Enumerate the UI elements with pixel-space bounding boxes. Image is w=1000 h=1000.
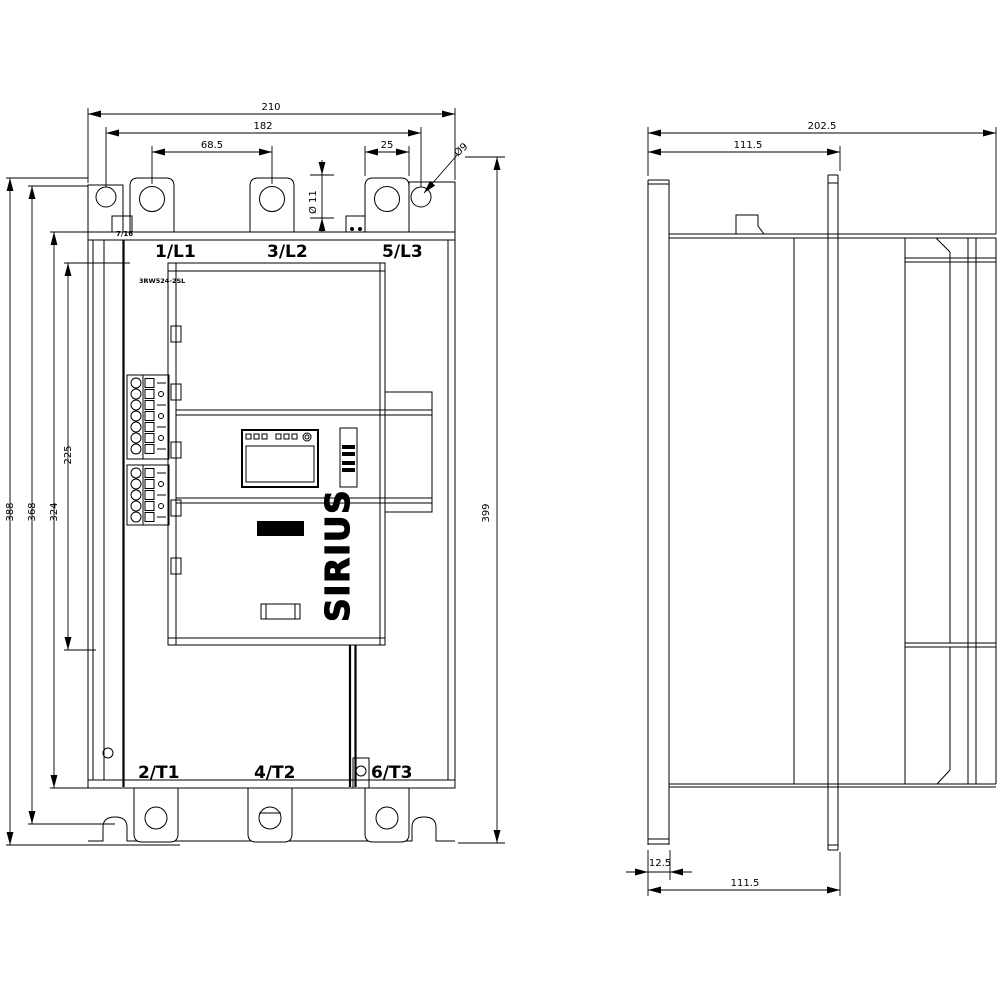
dim-slot-dia: Ø 11: [307, 190, 319, 214]
keyhole-slot-left: [103, 817, 127, 842]
side-tab-middle: [828, 175, 838, 850]
side-rail-left: [648, 180, 669, 845]
mounting-hole-top-left: [96, 187, 116, 207]
terminal-hole-L1: [140, 187, 165, 212]
terminal-label-2T1: 2/T1: [138, 763, 179, 783]
dim-lower-depth: 111.5: [731, 878, 760, 889]
side-view: 202.5 111.5 12.5 111.5: [626, 121, 996, 896]
siemens-logo: SIEMENS: [257, 521, 305, 536]
terminal-hole-L3: [375, 187, 400, 212]
dim-hole-dia: Ø9: [452, 141, 471, 159]
keyhole-slot-right: [412, 817, 436, 842]
hmi-display: [246, 446, 314, 482]
mounting-hole-top-right: [411, 187, 431, 207]
front-view: SIEMENS SIRIUS: [5, 102, 505, 845]
dim-hole-spacing-y: 368: [27, 502, 38, 521]
terminal-wiring-marks: [157, 383, 166, 517]
terminal-label-4T2: 4/T2: [254, 763, 295, 783]
dim-overall-width: 210: [261, 102, 280, 113]
soft-starter-dimension-drawing: SIEMENS SIRIUS: [0, 0, 1000, 1000]
hmi-recess-band: [176, 392, 432, 512]
product-code-label: 3RW524-2SL: [139, 277, 185, 285]
front-cover: [168, 263, 432, 645]
terminal-hole-L2: [260, 187, 285, 212]
small-marking-label: 7/16: [116, 230, 133, 238]
hmi-led-row: [246, 434, 297, 439]
dim-terminal-pitch: 68.5: [201, 140, 223, 151]
front-dimensions-right: 399: [458, 157, 505, 843]
series-text: SIRIUS: [318, 489, 357, 622]
cover-slot: [261, 604, 300, 619]
dim-rail-width: 12.5: [649, 858, 671, 869]
hmi-panel: [242, 430, 318, 487]
terminal-label-3L2: 3/L2: [267, 242, 308, 262]
top-terminal-lugs: [88, 178, 455, 232]
terminal-label-1L1: 1/L1: [155, 242, 196, 262]
side-top-bump: [736, 215, 764, 234]
hmi-button-icon: [303, 433, 311, 441]
side-outline: [648, 175, 996, 850]
dim-body-height: 324: [49, 502, 60, 521]
side-dimensions-top: 202.5 111.5: [648, 121, 996, 234]
front-dimensions-top: 210 182 68.5 25 Ø9 Ø 11: [88, 102, 470, 232]
dim-overall-height: 388: [5, 502, 16, 521]
terminal-label-6T3: 6/T3: [371, 763, 412, 783]
dim-terminal-width: 25: [381, 140, 394, 151]
dim-total-height: 399: [481, 503, 492, 522]
dim-hole-spacing-x: 182: [253, 121, 272, 132]
dim-cover-height: 225: [63, 445, 74, 464]
dimensional-drawing-page: SIEMENS SIRIUS: [0, 0, 1000, 1000]
dim-overall-depth: 202.5: [808, 121, 837, 132]
control-terminal-block: [127, 375, 169, 525]
terminal-label-5L3: 5/L3: [382, 242, 423, 262]
label-strip: [340, 428, 357, 487]
brand-text: SIEMENS: [257, 525, 305, 535]
dim-upper-depth: 111.5: [734, 140, 763, 151]
side-heatsink: [905, 238, 996, 784]
bottom-terminal-lugs: [88, 788, 455, 842]
side-dimensions-bottom: 12.5 111.5: [626, 850, 840, 896]
